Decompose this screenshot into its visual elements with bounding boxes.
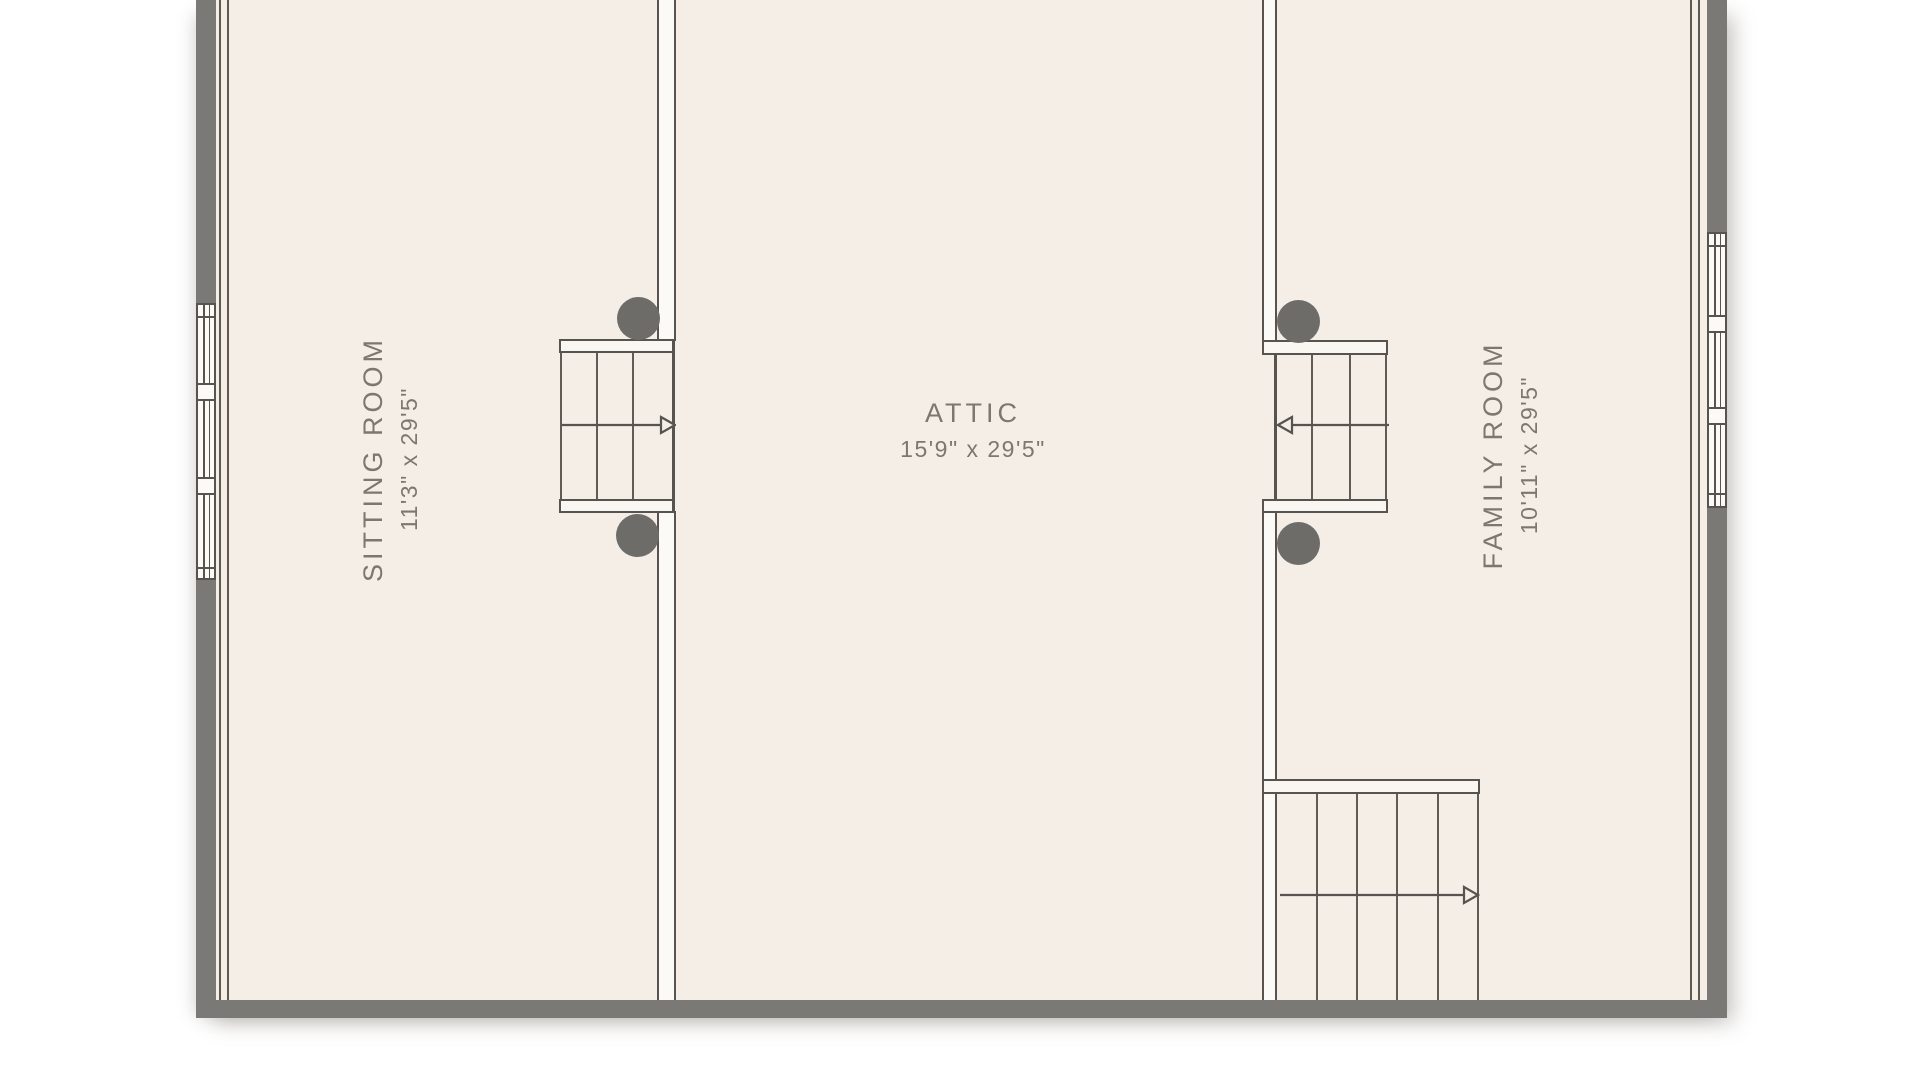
room-dimensions: 10'11" x 29'5" xyxy=(1516,376,1543,534)
exterior-wall-left-upper xyxy=(196,0,216,303)
stair-return-wall xyxy=(1262,499,1388,513)
window-glass-line xyxy=(1720,234,1722,506)
knee-wall-line-left-inner xyxy=(227,0,229,1000)
divider-wall-right-upper xyxy=(1262,0,1277,342)
exterior-wall-bottom xyxy=(196,1000,1727,1018)
chimney-post-circle xyxy=(616,514,659,557)
window-frame-line xyxy=(1709,493,1725,495)
divider-wall-left-lower xyxy=(657,511,676,1000)
window-frame-line xyxy=(198,316,214,318)
room-dimensions: 11'3" x 29'5" xyxy=(396,387,423,531)
chimney-post-circle xyxy=(617,297,660,340)
room-label-family-room: FAMILY ROOM 10'11" x 29'5" xyxy=(1470,255,1550,655)
room-dimensions: 15'9" x 29'5" xyxy=(853,436,1093,463)
room-label-sitting-room: SITTING ROOM 11'3" x 29'5" xyxy=(350,259,430,659)
window-glass-line xyxy=(1714,234,1716,506)
exterior-wall-left-lower xyxy=(196,580,216,1000)
divider-wall-left-upper xyxy=(657,0,676,341)
knee-wall-line-left-outer xyxy=(219,0,221,1000)
stair-direction-arrow-icon xyxy=(562,414,676,436)
divider-wall-right-lower xyxy=(1262,511,1277,1000)
stair-direction-arrow-icon xyxy=(1277,414,1389,436)
window-meeting-rail xyxy=(1709,315,1725,333)
room-name: FAMILY ROOM xyxy=(1478,340,1509,569)
window-meeting-rail xyxy=(1709,407,1725,425)
window-glass-line xyxy=(203,305,205,578)
room-name: SITTING ROOM xyxy=(358,336,389,582)
stair-return-wall xyxy=(1262,340,1388,355)
stair-return-wall xyxy=(559,339,674,353)
exterior-wall-right-lower xyxy=(1707,508,1727,1000)
stair-direction-arrow-icon xyxy=(1280,884,1480,906)
knee-wall-line-right-inner xyxy=(1690,0,1692,1000)
window-frame-line xyxy=(198,567,214,569)
window-meeting-rail xyxy=(198,383,214,401)
window-glass-line xyxy=(209,305,211,578)
stair-return-wall xyxy=(559,499,674,513)
window-right-wall xyxy=(1707,232,1727,508)
stair-landing-wall xyxy=(1262,779,1480,794)
knee-wall-line-right-outer xyxy=(1698,0,1700,1000)
window-frame-line xyxy=(1709,245,1725,247)
exterior-wall-right-upper xyxy=(1707,0,1727,232)
window-meeting-rail xyxy=(198,477,214,495)
room-label-attic: ATTIC 15'9" x 29'5" xyxy=(853,398,1093,463)
floor-plan: SITTING ROOM 11'3" x 29'5" ATTIC 15'9" x… xyxy=(0,0,1920,1080)
room-name: ATTIC xyxy=(853,398,1093,429)
chimney-post-circle xyxy=(1277,522,1320,565)
chimney-post-circle xyxy=(1277,300,1320,343)
window-left-wall xyxy=(196,303,216,580)
